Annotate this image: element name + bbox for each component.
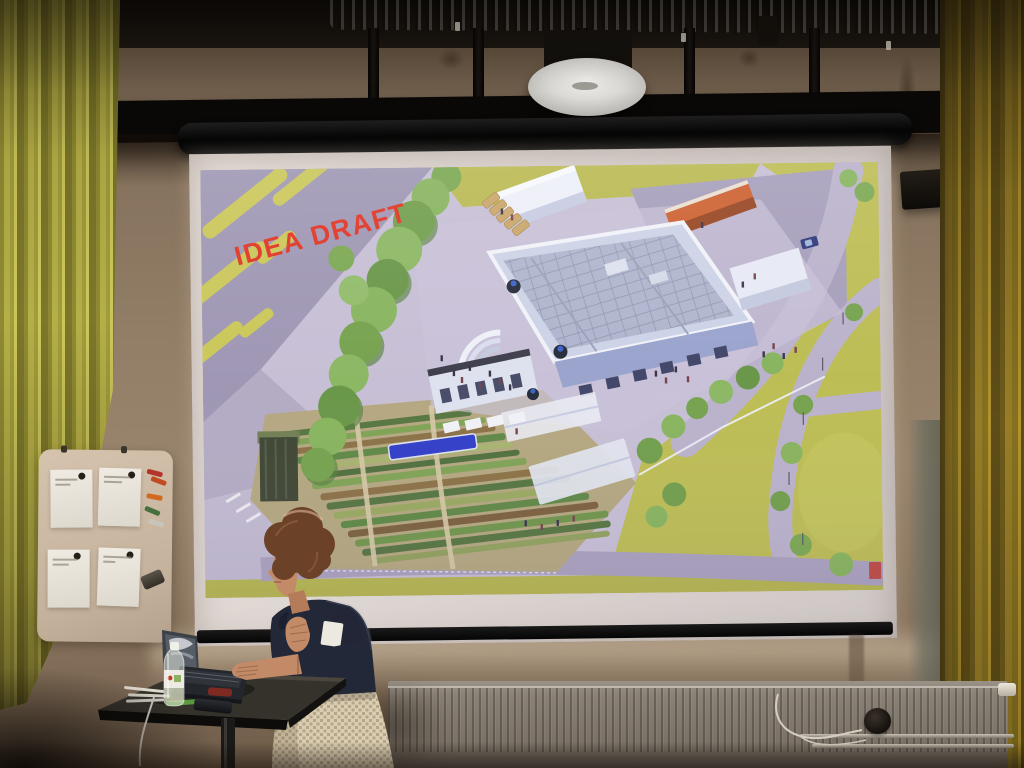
wall-tag bbox=[455, 22, 460, 31]
radiator-valve bbox=[998, 683, 1016, 696]
ceiling-post bbox=[368, 28, 379, 106]
wall-tag bbox=[886, 41, 891, 50]
wifi-access-point bbox=[528, 58, 646, 116]
curtain-right bbox=[940, 0, 1024, 768]
board-clip bbox=[121, 446, 127, 453]
board-clip bbox=[61, 446, 67, 453]
duct-elbow bbox=[758, 16, 778, 46]
ceiling-post bbox=[809, 28, 820, 100]
marker-green bbox=[144, 506, 161, 517]
ceiling-post bbox=[473, 28, 484, 106]
wall-stain bbox=[438, 48, 464, 70]
presenter-hair bbox=[264, 507, 335, 580]
presentation-room-photo: IDEA DRAFT bbox=[0, 0, 1024, 768]
wall-tag bbox=[681, 33, 686, 42]
wall-stain bbox=[738, 48, 760, 68]
bottom-shade bbox=[0, 742, 1024, 768]
marker-orange bbox=[146, 493, 163, 501]
paper-note bbox=[98, 468, 142, 527]
ventilation-duct bbox=[330, 0, 1024, 34]
board-eraser bbox=[140, 569, 166, 591]
marker-silver bbox=[148, 518, 165, 527]
marker-orange-red bbox=[150, 476, 167, 486]
paper-note bbox=[50, 470, 92, 528]
